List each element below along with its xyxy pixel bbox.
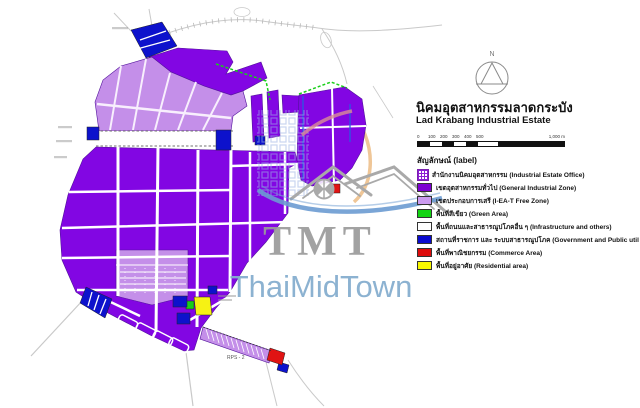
zone-residential-yellow	[194, 297, 212, 315]
legend-swatch	[417, 209, 432, 219]
legend-item-label: สำนักงานนิคมอุตสาหกรรม (Industrial Estat…	[432, 170, 585, 180]
scale-end-label: 1,000 m	[549, 134, 565, 139]
legend-swatch	[417, 222, 432, 232]
scale-bar-segments	[417, 141, 565, 147]
legend-item-label: เขตประกอบการเสรี (I-EA-T Free Zone)	[436, 196, 549, 206]
industrial-estate-office-icon	[417, 169, 429, 181]
legend-item-label: พื้นที่พาณิชยกรรม (Commerce Area)	[436, 248, 542, 258]
legend-item-green-area: พื้นที่สีเขียว (Green Area)	[417, 207, 639, 220]
compass-circle	[476, 62, 508, 94]
legend-item-free-zone: เขตประกอบการเสรี (I-EA-T Free Zone)	[417, 194, 639, 207]
strip-label: RPS - 2	[227, 355, 245, 361]
map-title-english: Lad Krabang Industrial Estate	[416, 115, 636, 126]
info-panel: N นิคมอุตสาหกรรมลาดกระบัง Lad Krabang In…	[414, 0, 640, 408]
legend-swatch	[417, 235, 432, 245]
legend-item-label: สถานที่ราชการ และ ระบบสาธารณูปโภค (Gover…	[436, 235, 639, 245]
legend-item-label: พื้นที่ถนนและสาธารณูปโภคอื่น ๆ (Infrastr…	[436, 222, 612, 232]
legend-item-commerce: พื้นที่พาณิชยกรรม (Commerce Area)	[417, 246, 639, 259]
legend-item-general-industrial: เขตอุตสาหกรรมทั่วไป (General Industrial …	[417, 181, 639, 194]
scale-tick: 300	[452, 134, 460, 139]
scale-tick: 500	[476, 134, 484, 139]
scale-tick: 200	[440, 134, 448, 139]
watermark-tmt-text: TMT	[263, 219, 377, 265]
legend-swatch	[417, 196, 432, 206]
legend-item-infrastructure: พื้นที่ถนนและสาธารณูปโภคอื่น ๆ (Infrastr…	[417, 220, 639, 233]
legend-item-label: พื้นที่อยู่อาศัย (Residential area)	[436, 261, 528, 271]
scale-bar: 0 100 200 300 400 500 1,000 m	[417, 134, 565, 150]
legend-item-label: เขตอุตสาหกรรมทั่วไป (General Industrial …	[436, 183, 576, 193]
scale-tick: 100	[428, 134, 436, 139]
legend-heading: สัญลักษณ์ (label)	[417, 154, 477, 167]
watermark-square-pattern	[257, 110, 309, 196]
legend-swatch	[417, 248, 432, 258]
legend-swatch	[417, 183, 432, 193]
scale-tick: 0	[417, 134, 420, 139]
watermark-thaimidtown-text: ThaiMidTown	[230, 269, 413, 304]
legend-item-residential: พื้นที่อยู่อาศัย (Residential area)	[417, 259, 639, 272]
compass-rose: N	[470, 48, 514, 100]
scale-tick: 400	[464, 134, 472, 139]
legend-swatch	[417, 261, 432, 271]
legend-item-government: สถานที่ราชการ และ ระบบสาธารณูปโภค (Gover…	[417, 233, 639, 246]
yellow-block	[194, 297, 212, 315]
blue-band-right	[216, 130, 231, 150]
legend: สำนักงานนิคมอุตสาหกรรม (Industrial Estat…	[417, 168, 639, 272]
main-road-band	[96, 131, 233, 146]
blue-band-left	[87, 127, 99, 140]
legend-item-label: พื้นที่สีเขียว (Green Area)	[436, 209, 508, 219]
compass-needle	[481, 63, 503, 84]
legend-item-office: สำนักงานนิคมอุตสาหกรรม (Industrial Estat…	[417, 168, 639, 181]
scale-ticks: 0 100 200 300 400 500 1,000 m	[417, 134, 565, 140]
compass-north-label: N	[489, 51, 494, 58]
lad-krabang-industrial-estate-map: RPS - 2 TMT ThaiMidTown N นิคมอุตสาหกรรม…	[0, 0, 640, 408]
